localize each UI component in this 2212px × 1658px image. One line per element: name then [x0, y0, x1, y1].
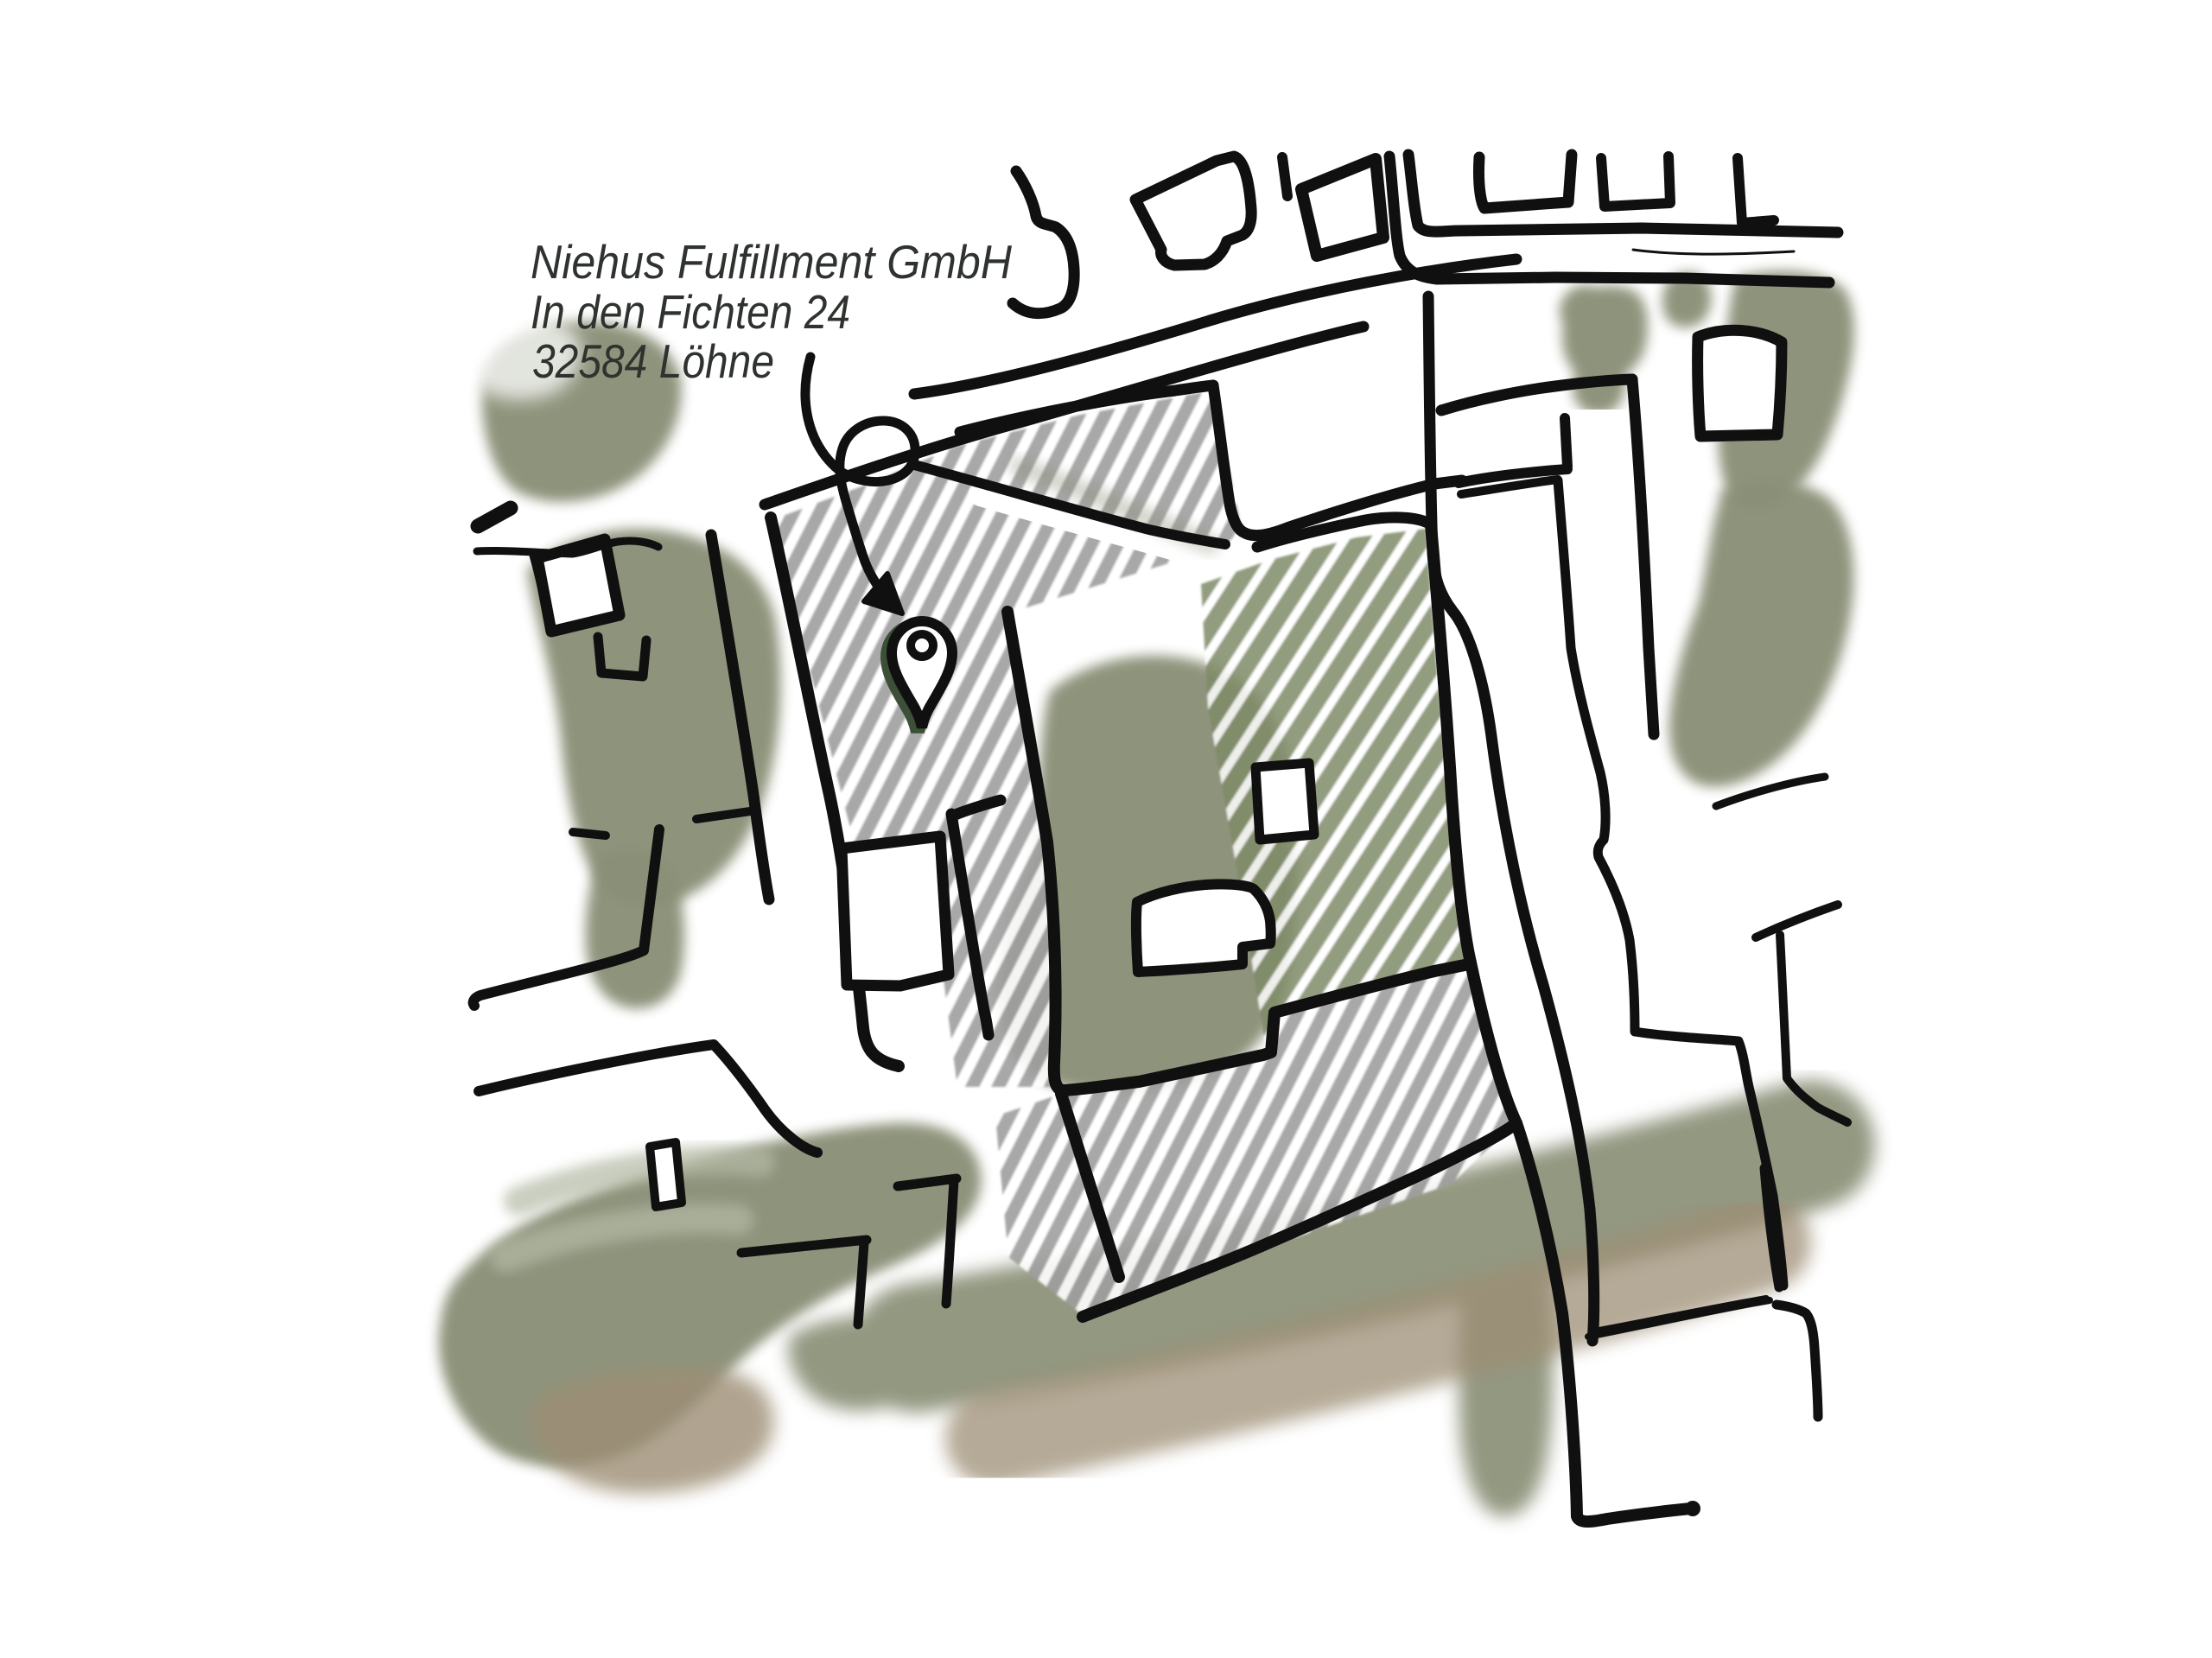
svg-text:Niehus Fulfillment GmbH: Niehus Fulfillment GmbH	[531, 235, 1012, 289]
svg-text:In den Fichten 24: In den Fichten 24	[531, 285, 850, 339]
svg-text:32584 Löhne: 32584 Löhne	[532, 334, 774, 388]
